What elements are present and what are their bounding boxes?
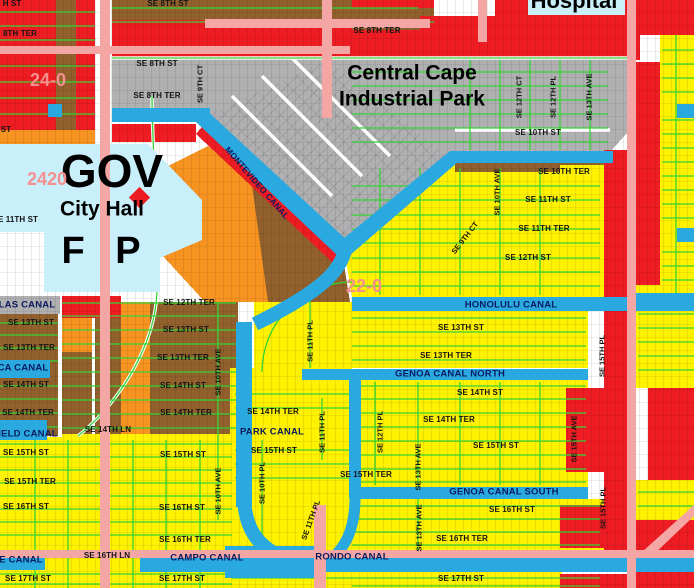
- street-label: SE 15TH ST: [251, 447, 297, 455]
- street-label: SE 14TH ST: [3, 381, 49, 389]
- street-label: SE 14TH ST: [160, 382, 206, 390]
- street-label: SE 16TH ST: [159, 504, 205, 512]
- street-label: SE 15TH TER: [4, 478, 56, 486]
- canal-label: CAMPO CANAL: [170, 553, 243, 563]
- area-label: F P: [61, 232, 140, 270]
- canal-label: PARK CANAL: [240, 427, 304, 437]
- vstreet-label: SE 10TH PL: [258, 462, 266, 504]
- vstreet-label: SE 13TH AVE: [414, 443, 422, 490]
- street-label: SE 16TH TER: [436, 535, 488, 543]
- street-label: SE 11TH ST: [525, 196, 570, 204]
- street-label: ST: [1, 126, 11, 134]
- street-label: SE 16TH ST: [3, 503, 49, 511]
- street-label: 8TH TER: [3, 30, 37, 38]
- canal-label: CA CANAL: [0, 363, 48, 373]
- street-label: SE 13TH ST: [8, 319, 54, 327]
- street-label: SE 17TH ST: [5, 575, 51, 583]
- street-label: SE 13TH TER: [157, 354, 209, 362]
- vstreet-label: SE 10TH AVE: [214, 467, 222, 514]
- street-label: E 11TH ST: [0, 216, 38, 224]
- map-labels: H STSE 8TH ST8TH TERSE 8TH TERSE 8TH STS…: [0, 0, 694, 588]
- street-label: SE 15TH ST: [3, 449, 49, 457]
- canal-label: IELD CANAL: [0, 429, 58, 439]
- street-label: SE 16TH ST: [489, 506, 535, 514]
- section-label: 22-0: [346, 277, 382, 295]
- street-label: H ST: [3, 0, 22, 8]
- vstreet-label: SE 9TH CT: [196, 65, 204, 103]
- street-label: SE 8TH ST: [147, 0, 188, 8]
- vstreet-label: SE 11TH PL: [306, 320, 314, 362]
- street-label: SE 15TH TER: [340, 471, 392, 479]
- canal-label: LAS CANAL: [0, 300, 55, 310]
- section-label: 24-0: [30, 71, 66, 89]
- street-label: SE 17TH ST: [159, 575, 205, 583]
- vstreet-label: SE 13TH AVE: [415, 504, 423, 551]
- vstreet-label: SE 15TH PL: [599, 487, 607, 529]
- zoning-map[interactable]: H STSE 8TH ST8TH TERSE 8TH TERSE 8TH STS…: [0, 0, 694, 588]
- street-label: SE 13TH TER: [420, 352, 472, 360]
- street-label: SE 17TH ST: [438, 575, 484, 583]
- street-label: SE 14TH TER: [247, 408, 299, 416]
- street-label: SE 14TH LN: [85, 426, 131, 434]
- section-label: 2420: [27, 170, 67, 188]
- street-label: SE 13TH ST: [163, 326, 209, 334]
- street-label: SE 14TH TER: [2, 409, 54, 417]
- vstreet-label: SE 15TH PL: [598, 335, 606, 377]
- canal-label: GENOA CANAL NORTH: [395, 369, 505, 379]
- street-label: SE 8TH TER: [353, 27, 400, 35]
- vstreet-label: SE 10TH AVE: [493, 168, 501, 215]
- area-label: Hospital: [531, 0, 618, 12]
- area-label: Central Cape: [347, 63, 477, 84]
- vstreet-label: SE 12TH PL: [549, 76, 557, 118]
- vstreet-label: SE 12TH PL: [376, 411, 384, 453]
- street-label: SE 16TH TER: [159, 536, 211, 544]
- street-label: SE 10TH ST: [515, 129, 561, 137]
- canal-label: RONDO CANAL: [315, 552, 388, 562]
- vstreet-label: SE 10TH AVE: [214, 348, 222, 395]
- vstreet-label: SE 11TH PL: [300, 499, 321, 541]
- street-label: SE 10TH TER: [538, 168, 590, 176]
- street-label: SE 12TH ST: [505, 254, 551, 262]
- vstreet-label: SE 9TH CT: [450, 221, 480, 256]
- area-label: City Hall: [60, 199, 144, 220]
- street-label: SE 8TH ST: [136, 60, 177, 68]
- street-label: SE 13TH TER: [3, 344, 55, 352]
- vstreet-label: SE 13TH AVE: [585, 73, 593, 120]
- street-label: SE 13TH ST: [438, 324, 484, 332]
- street-label: SE 8TH TER: [133, 92, 180, 100]
- street-label: SE 15TH ST: [160, 451, 206, 459]
- street-label: SE 14TH TER: [160, 409, 212, 417]
- vstreet-label: SE 15TH AVE: [570, 415, 578, 462]
- canal-label: E CANAL: [0, 555, 43, 565]
- canal-label: HONOLULU CANAL: [465, 300, 558, 310]
- area-label: Industrial Park: [339, 89, 485, 110]
- street-label: SE 12TH TER: [163, 299, 215, 307]
- street-label: SE 15TH ST: [473, 442, 519, 450]
- canal-label: GENOA CANAL SOUTH: [449, 487, 559, 497]
- area-label: GOV: [61, 148, 163, 194]
- street-label: SE 14TH ST: [457, 389, 503, 397]
- street-label: SE 14TH TER: [423, 416, 475, 424]
- vstreet-label: SE 11TH PL: [318, 411, 326, 453]
- vstreet-label: SE 12TH CT: [515, 76, 523, 119]
- street-label: SE 11TH TER: [518, 225, 569, 233]
- canal-label: MONTEVIDEO CANAL: [223, 145, 290, 220]
- street-label: SE 16TH LN: [84, 552, 130, 560]
